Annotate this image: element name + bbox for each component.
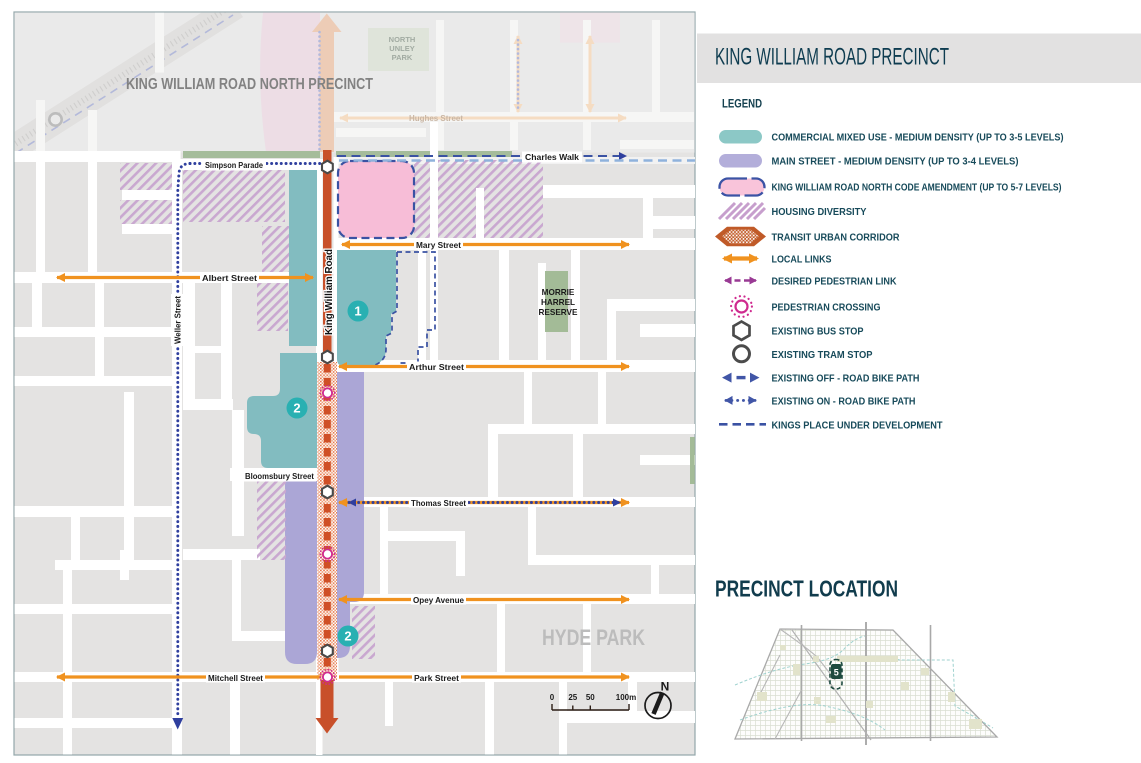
svg-text:Arthur Street: Arthur Street [409, 362, 464, 372]
svg-text:PARK: PARK [392, 53, 413, 62]
svg-text:Opey Avenue: Opey Avenue [413, 595, 464, 605]
svg-text:KINGS PLACE UNDER DEVELOPMENT: KINGS PLACE UNDER DEVELOPMENT [772, 419, 944, 431]
svg-text:100m: 100m [616, 693, 636, 702]
svg-text:HYDE PARK: HYDE PARK [542, 625, 646, 650]
svg-text:Mitchell Street: Mitchell Street [208, 673, 263, 683]
svg-text:Park Street: Park Street [414, 673, 459, 683]
svg-text:50: 50 [586, 693, 595, 702]
svg-text:Hughes Street: Hughes Street [409, 113, 463, 123]
svg-text:RESERVE: RESERVE [539, 308, 579, 317]
svg-text:N: N [661, 680, 670, 694]
svg-text:EXISTING TRAM STOP: EXISTING TRAM STOP [772, 349, 873, 361]
svg-text:Simpson Parade: Simpson Parade [205, 160, 263, 170]
svg-text:25: 25 [568, 693, 577, 702]
svg-text:Thomas Street: Thomas Street [411, 498, 466, 508]
svg-text:TRANSIT URBAN CORRIDOR: TRANSIT URBAN CORRIDOR [772, 232, 900, 244]
svg-text:EXISTING OFF - ROAD BIKE PATH: EXISTING OFF - ROAD BIKE PATH [772, 373, 920, 385]
svg-text:0: 0 [550, 693, 555, 702]
svg-text:King William Road: King William Road [323, 249, 335, 335]
svg-text:Weller Street: Weller Street [173, 296, 183, 344]
svg-text:2: 2 [293, 401, 300, 416]
svg-text:UNLEY: UNLEY [389, 44, 414, 53]
svg-text:HOUSING DIVERSITY: HOUSING DIVERSITY [772, 206, 867, 218]
svg-text:Mary Street: Mary Street [416, 240, 461, 250]
svg-text:PRECINCT LOCATION: PRECINCT LOCATION [715, 576, 898, 602]
svg-text:HARREL: HARREL [541, 298, 575, 307]
svg-text:MAIN STREET - MEDIUM DENSITY (: MAIN STREET - MEDIUM DENSITY (UP TO 3-4 … [772, 156, 1019, 168]
svg-text:Albert Street: Albert Street [202, 273, 257, 283]
svg-text:5: 5 [834, 668, 839, 678]
svg-text:DESIRED PEDESTRIAN LINK: DESIRED PEDESTRIAN LINK [772, 276, 897, 288]
svg-text:KING WILLIAM ROAD PRECINCT: KING WILLIAM ROAD PRECINCT [715, 44, 949, 71]
svg-text:EXISTING ON - ROAD BIKE PATH: EXISTING ON - ROAD BIKE PATH [772, 395, 916, 407]
svg-text:NORTH: NORTH [389, 35, 416, 44]
svg-text:LEGEND: LEGEND [722, 99, 762, 111]
svg-text:Bloomsbury Street: Bloomsbury Street [245, 471, 314, 481]
svg-text:2: 2 [344, 629, 351, 644]
svg-text:KING WILLIAM ROAD NORTH CODE A: KING WILLIAM ROAD NORTH CODE AMENDMENT (… [772, 182, 1062, 194]
svg-text:COMMERCIAL MIXED USE - MEDIUM: COMMERCIAL MIXED USE - MEDIUM DENSITY (U… [772, 132, 1064, 144]
svg-text:LOCAL LINKS: LOCAL LINKS [772, 254, 832, 266]
svg-text:KING WILLIAM ROAD NORTH PRECIN: KING WILLIAM ROAD NORTH PRECINCT [126, 76, 373, 93]
svg-text:EXISTING BUS STOP: EXISTING BUS STOP [772, 326, 864, 338]
svg-text:1: 1 [354, 304, 361, 319]
svg-text:MORRIE: MORRIE [542, 288, 575, 297]
svg-text:Charles Walk: Charles Walk [525, 152, 579, 162]
svg-text:PEDESTRIAN CROSSING: PEDESTRIAN CROSSING [772, 302, 881, 314]
